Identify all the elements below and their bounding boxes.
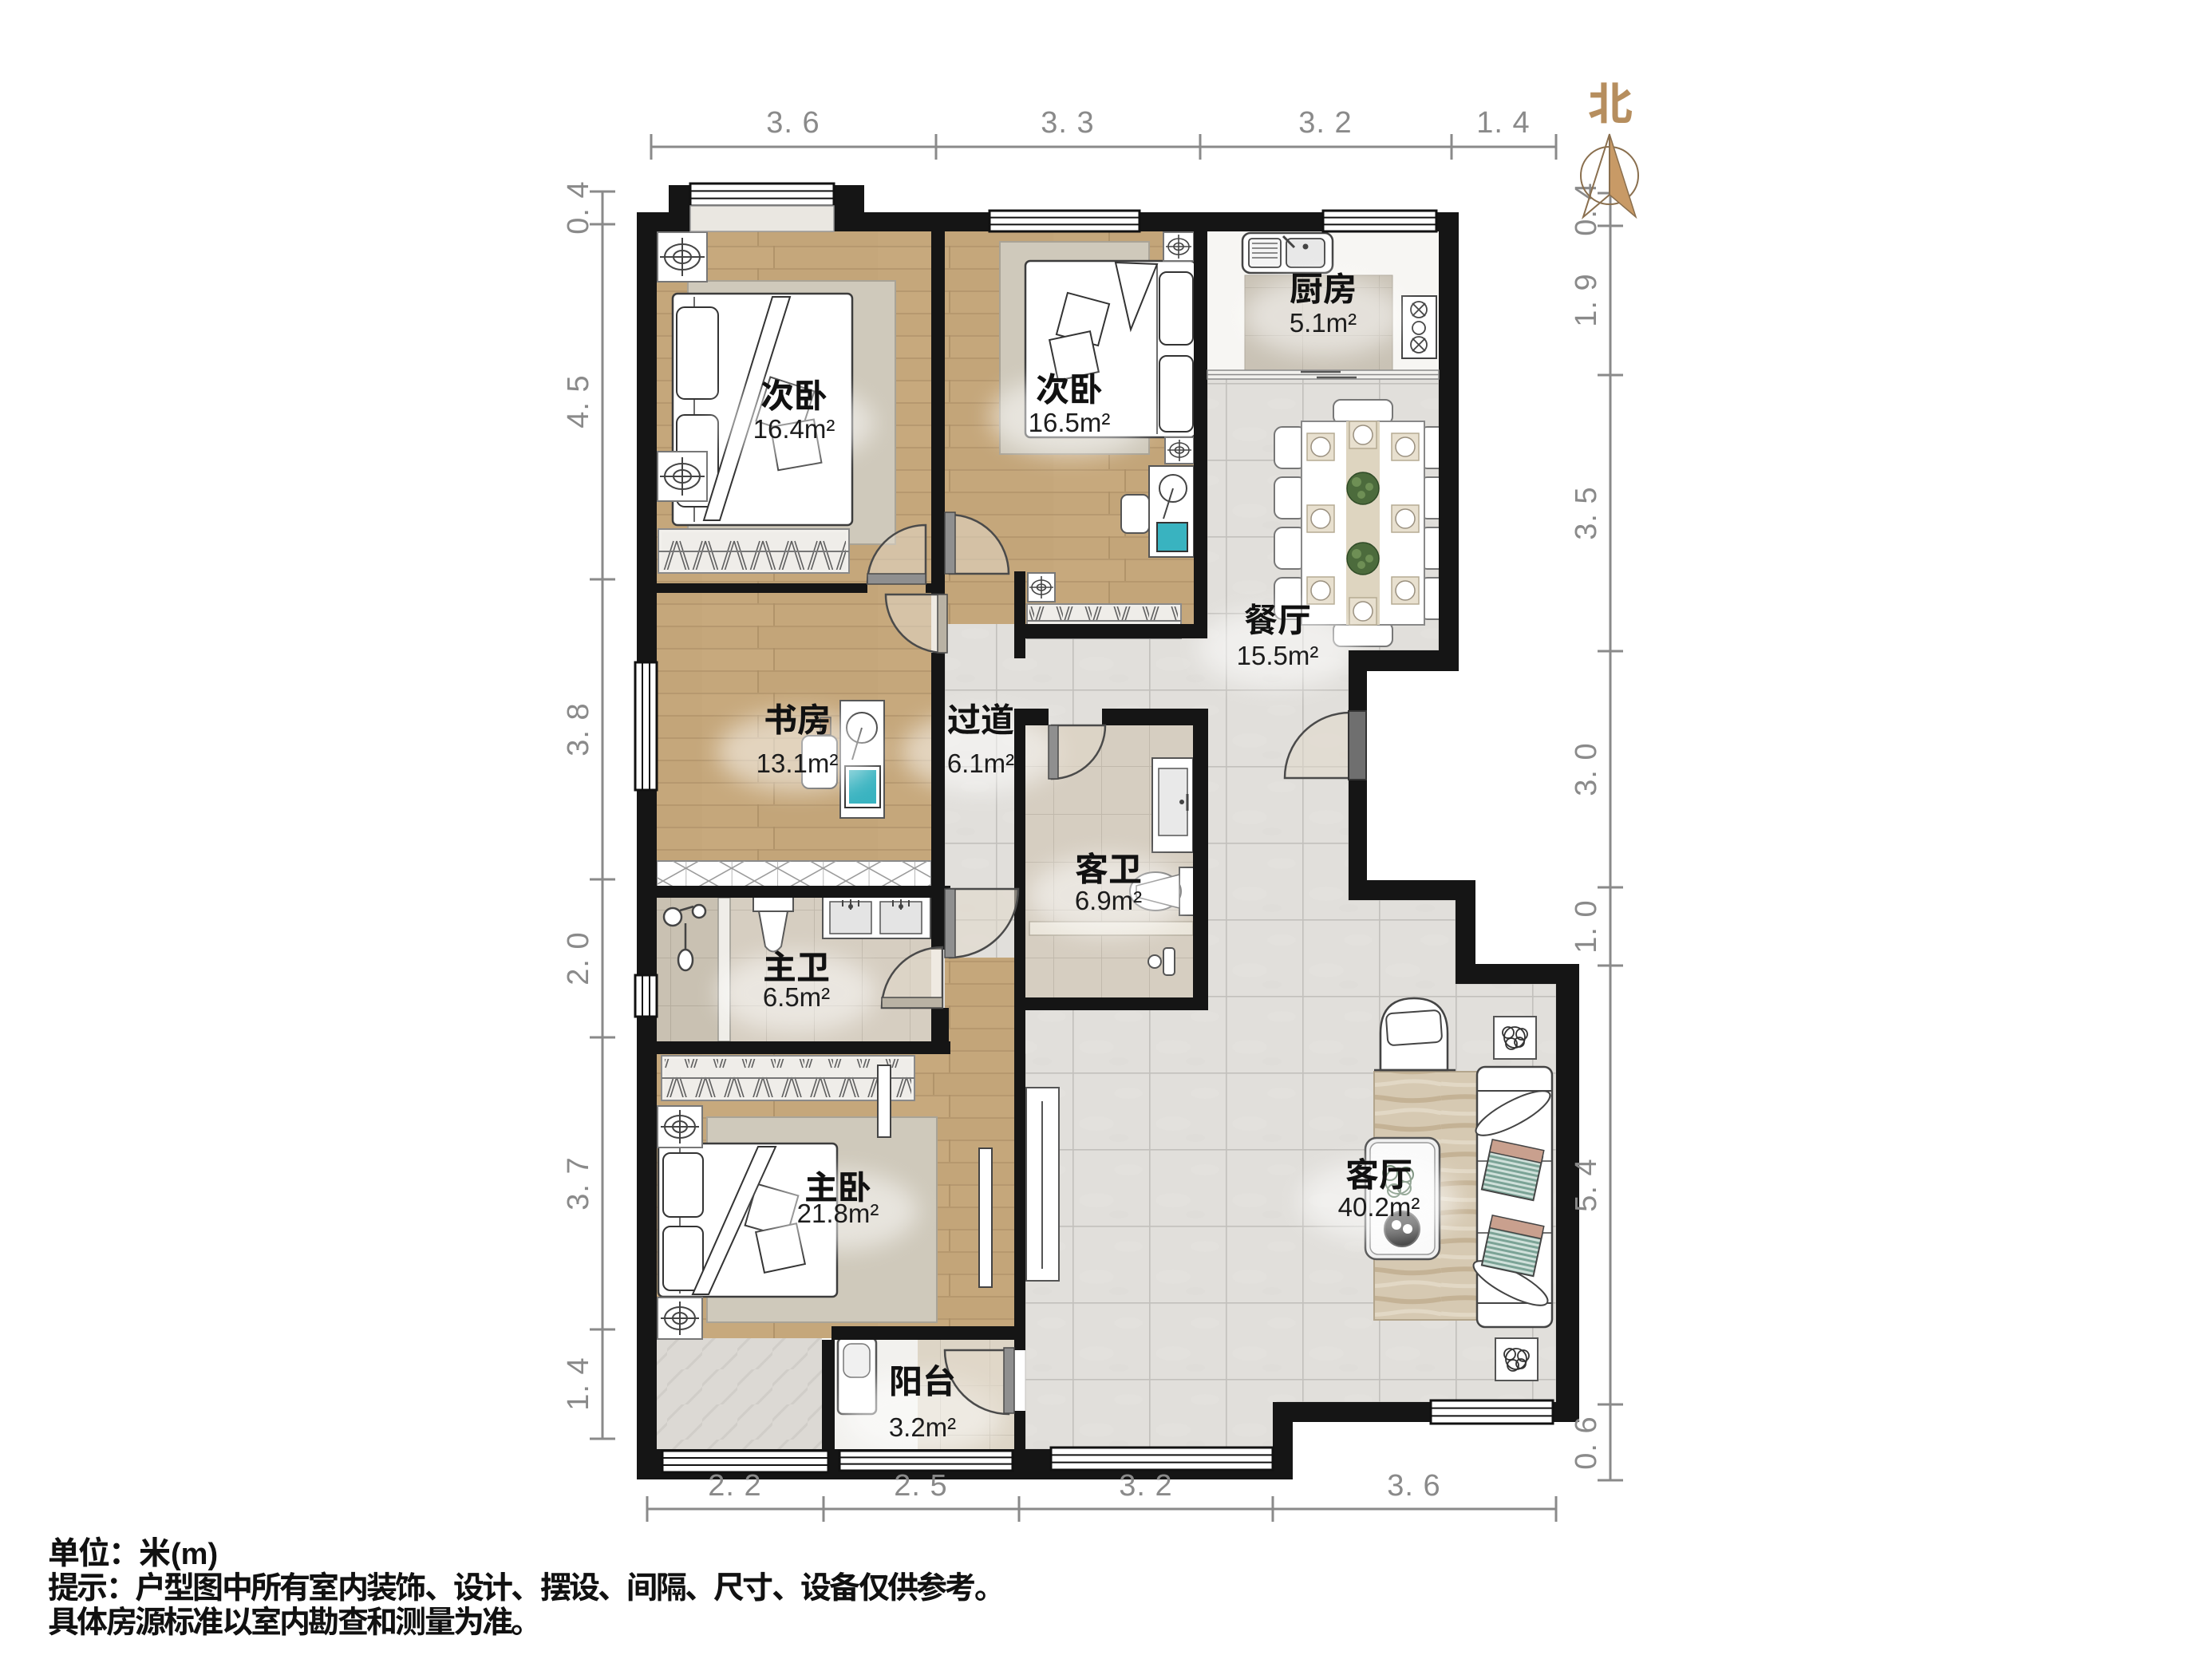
svg-text:1. 9: 1. 9 xyxy=(1570,273,1603,326)
svg-text:(m): (m) xyxy=(171,1538,218,1571)
svg-text:21.8m²: 21.8m² xyxy=(797,1199,879,1228)
svg-text:3. 7: 3. 7 xyxy=(562,1156,595,1210)
svg-text:5. 4: 5. 4 xyxy=(1570,1158,1603,1211)
svg-text:3. 3: 3. 3 xyxy=(1041,106,1094,140)
svg-text:3. 2: 3. 2 xyxy=(1298,106,1352,140)
svg-text:5.1m²: 5.1m² xyxy=(1290,308,1357,338)
svg-text:15.5m²: 15.5m² xyxy=(1237,641,1319,670)
svg-text:2. 0: 2. 0 xyxy=(562,931,595,985)
svg-text:2. 2: 2. 2 xyxy=(708,1469,761,1503)
svg-text:3. 0: 3. 0 xyxy=(1570,742,1603,796)
svg-text:1. 4: 1. 4 xyxy=(562,1357,595,1410)
svg-text:1. 4: 1. 4 xyxy=(1476,106,1530,140)
svg-text:6.5m²: 6.5m² xyxy=(763,982,830,1012)
svg-text:3. 6: 3. 6 xyxy=(1387,1469,1440,1503)
svg-text:3.2m²: 3.2m² xyxy=(889,1412,956,1442)
svg-text:6.9m²: 6.9m² xyxy=(1075,886,1142,915)
svg-text:3. 6: 3. 6 xyxy=(766,106,820,140)
svg-text:3. 5: 3. 5 xyxy=(1570,486,1603,539)
svg-text:1. 0: 1. 0 xyxy=(1570,899,1603,953)
svg-text:16.4m²: 16.4m² xyxy=(753,414,835,444)
svg-text:3. 8: 3. 8 xyxy=(562,702,595,756)
svg-text:0. 6: 0. 6 xyxy=(1570,1416,1603,1469)
svg-text:6.1m²: 6.1m² xyxy=(947,749,1014,778)
svg-text:4. 5: 4. 5 xyxy=(562,374,595,428)
svg-text:13.1m²: 13.1m² xyxy=(756,749,839,778)
svg-text:2. 5: 2. 5 xyxy=(894,1469,947,1503)
svg-text:3. 2: 3. 2 xyxy=(1119,1469,1172,1503)
svg-text:16.5m²: 16.5m² xyxy=(1029,408,1111,437)
svg-text:40.2m²: 40.2m² xyxy=(1338,1192,1420,1222)
svg-text:0. 4: 0. 4 xyxy=(562,180,595,234)
